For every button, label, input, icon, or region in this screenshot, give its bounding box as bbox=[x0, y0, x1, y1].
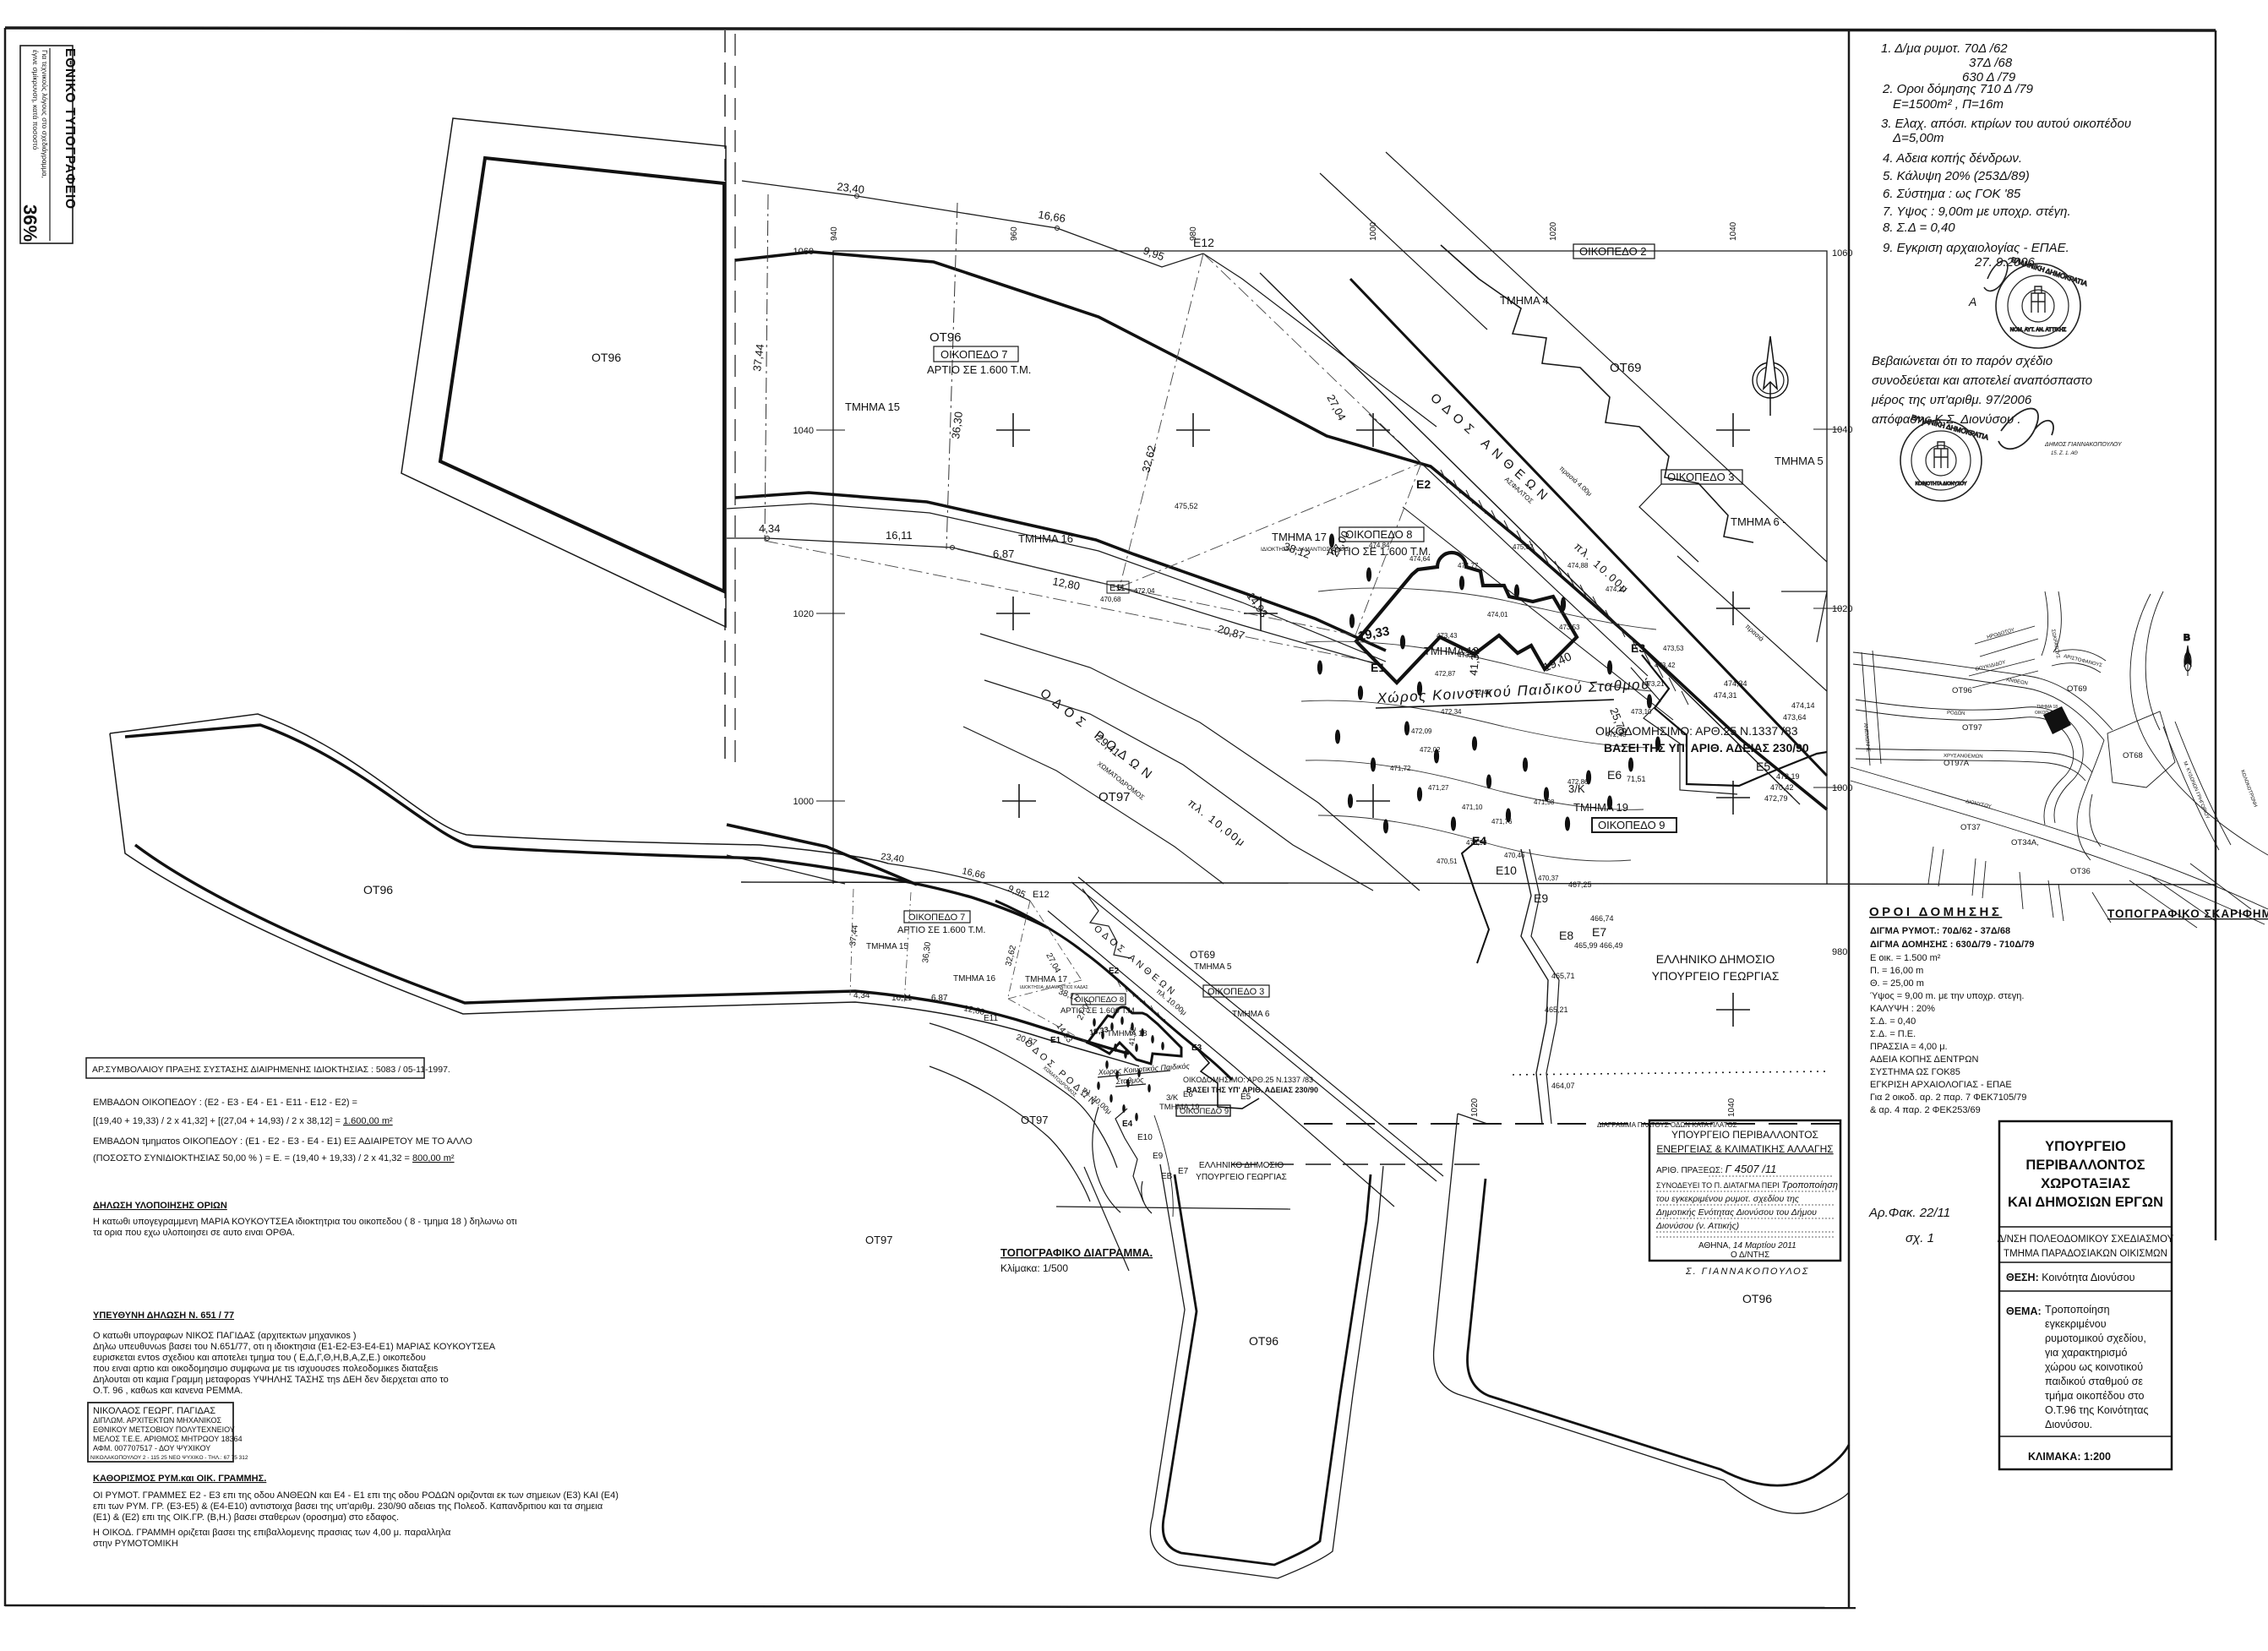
svg-text:του εγκεκριμένου ρυμοτ. σχε: του εγκεκριμένου ρυμοτ. σχεδίου της bbox=[1656, 1194, 1800, 1204]
svg-text:1020: 1020 bbox=[1549, 221, 1558, 241]
svg-text:ΤΜΗΜΑ 19: ΤΜΗΜΑ 19 bbox=[1573, 801, 1628, 814]
svg-text:6,87: 6,87 bbox=[931, 994, 948, 1003]
svg-text:8. Σ.Δ = 0,40: 8. Σ.Δ = 0,40 bbox=[1883, 221, 1955, 235]
svg-text:ΟΤ96: ΟΤ96 bbox=[1952, 686, 1972, 695]
svg-text:ΟΤ96: ΟΤ96 bbox=[1742, 1292, 1772, 1305]
svg-text:Β: Β bbox=[2183, 633, 2190, 643]
svg-text:ΑΡ.ΣΥΜΒΟΛΑΙΟΥ ΠΡΑΞΗΣ ΣΥΣΤΑΣΗ: ΑΡ.ΣΥΜΒΟΛΑΙΟΥ ΠΡΑΞΗΣ ΣΥΣΤΑΣΗΣ ΔΙΑΙΡΗΜΕΝΗ… bbox=[92, 1065, 450, 1075]
svg-text:Ε4: Ε4 bbox=[1122, 1120, 1133, 1129]
svg-text:960: 960 bbox=[1010, 226, 1019, 241]
svg-text:ΝΙΚΟΛΑΟΣ ΓΕΩΡΓ. ΠΑΓΙΔΑΣ: ΝΙΚΟΛΑΟΣ ΓΕΩΡΓ. ΠΑΓΙΔΑΣ bbox=[93, 1406, 215, 1416]
svg-text:41,32: 41,32 bbox=[1127, 1027, 1137, 1046]
svg-text:ΒΑΣΕΙ ΤΗΣ ΥΠ' ΑΡΙΘ. ΑΔΕΙΑΣ 230: ΒΑΣΕΙ ΤΗΣ ΥΠ' ΑΡΙΘ. ΑΔΕΙΑΣ 230/90 bbox=[1604, 741, 1809, 755]
svg-text:ΟΤ97: ΟΤ97 bbox=[1021, 1114, 1049, 1126]
svg-text:ΡΟΔΩΝ: ΡΟΔΩΝ bbox=[1947, 711, 1965, 717]
svg-text:473,58: 473,58 bbox=[1458, 651, 1479, 659]
svg-text:ΚΑΘΟΡΙΣΜΟΣ ΡΥΜ.και ΟΙΚ. ΓΡΑ: ΚΑΘΟΡΙΣΜΟΣ ΡΥΜ.και ΟΙΚ. ΓΡΑΜΜΗΣ. bbox=[93, 1474, 266, 1484]
svg-text:ΔΙΑΓΡΑΜΜΑ ΠΛΑΤΟΥΣ ΟΔΩΝ ΚΑΤΑ ΠΛ: ΔΙΑΓΡΑΜΜΑ ΠΛΑΤΟΥΣ ΟΔΩΝ ΚΑΤΑ ΠΛΑΤΟΣ bbox=[1597, 1121, 1737, 1129]
svg-text:472,87: 472,87 bbox=[1435, 670, 1456, 678]
svg-text:1040: 1040 bbox=[1727, 1098, 1736, 1117]
svg-text:475,52: 475,52 bbox=[1175, 502, 1198, 510]
svg-text:475,02: 475,02 bbox=[1513, 543, 1534, 551]
svg-text:ΟΙΚΟΠΕΔΟ 7: ΟΙΚΟΠΕΔΟ 7 bbox=[908, 913, 965, 923]
svg-text:471,27: 471,27 bbox=[1428, 784, 1449, 792]
svg-text:τα ορια που εχω υλοποιησει: τα ορια που εχω υλοποιησει σε αυτο ειναι… bbox=[93, 1228, 295, 1238]
svg-text:ΤΟΠΟΓΡΑΦΙΚΟ ΣΚΑΡΙΦΗΜΑ: ΤΟΠΟΓΡΑΦΙΚΟ ΣΚΑΡΙΦΗΜΑ bbox=[2107, 907, 2268, 920]
svg-text:474,88: 474,88 bbox=[1567, 562, 1589, 569]
svg-text:470,42: 470,42 bbox=[1770, 783, 1794, 792]
svg-text:ΟΙΚΟΠΕΔΟ 8: ΟΙΚΟΠΕΔΟ 8 bbox=[1075, 995, 1124, 1005]
svg-text:ΝΟΜ. ΑΥΤ. ΑΝ. ΑΤΤΙΚΗΣ: ΝΟΜ. ΑΥΤ. ΑΝ. ΑΤΤΙΚΗΣ bbox=[2010, 328, 2067, 333]
svg-text:ΟΙΚΟΠΕΔΟ 7: ΟΙΚΟΠΕΔΟ 7 bbox=[940, 348, 1008, 361]
svg-text:Ε11: Ε11 bbox=[984, 1014, 998, 1023]
svg-text:Θ. = 25,00 m: Θ. = 25,00 m bbox=[1870, 978, 1924, 989]
svg-text:ΑΔΕΙΑ ΚΟΠΗΣ ΔΕΝΤΡΩΝ: ΑΔΕΙΑ ΚΟΠΗΣ ΔΕΝΤΡΩΝ bbox=[1870, 1054, 1978, 1065]
svg-text:ΤΜΗΜΑ 5: ΤΜΗΜΑ 5 bbox=[1194, 962, 1232, 972]
svg-text:471,72: 471,72 bbox=[1390, 765, 1411, 772]
svg-text:474,14: 474,14 bbox=[1791, 701, 1815, 710]
svg-text:1040: 1040 bbox=[1729, 221, 1738, 241]
svg-text:ΔΙΓΜΑ ΡΥΜΟΤ.: 70Δ/62 - 37Δ/68: ΔΙΓΜΑ ΡΥΜΟΤ.: 70Δ/62 - 37Δ/68 bbox=[1870, 926, 2010, 936]
svg-text:ΟΤ96: ΟΤ96 bbox=[363, 883, 393, 896]
svg-text:ΟΙΚΟΔΟΜΗΣΙΜΟ: ΑΡΘ.25 Ν.1337: ΟΙΚΟΔΟΜΗΣΙΜΟ: ΑΡΘ.25 Ν.1337 /83 bbox=[1183, 1076, 1313, 1084]
svg-text:ΕΛΛΗΝΙΚΟ ΔΗΜΟΣΙΟ: ΕΛΛΗΝΙΚΟ ΔΗΜΟΣΙΟ bbox=[1199, 1161, 1284, 1170]
svg-text:ΥΠΟΥΡΓΕΙΟ ΠΕΡΙΒΑΛΛΟΝΤΟΣ: ΥΠΟΥΡΓΕΙΟ ΠΕΡΙΒΑΛΛΟΝΤΟΣ bbox=[1671, 1129, 1818, 1141]
svg-text:συνοδεύεται και αποτελεί ανα: συνοδεύεται και αποτελεί αναπόσπαστο bbox=[1872, 373, 2092, 388]
svg-text:474,31: 474,31 bbox=[1714, 691, 1737, 700]
svg-text:(ΠΟΣΟΣΤΟ ΣΥΝΙΔΙΟΚΤΗΣΙΑΣ 50,0: (ΠΟΣΟΣΤΟ ΣΥΝΙΔΙΟΚΤΗΣΙΑΣ 50,00 % ) = Ε. =… bbox=[93, 1153, 455, 1163]
svg-text:470,68: 470,68 bbox=[1100, 596, 1121, 603]
svg-text:4. Αδεια κοπής δένδρων.: 4. Αδεια κοπής δένδρων. bbox=[1883, 151, 2022, 166]
svg-text:ΟΙΚΟΠΕΔΟ 2: ΟΙΚΟΠΕΔΟ 2 bbox=[1579, 245, 1647, 258]
svg-text:1040: 1040 bbox=[1832, 425, 1852, 435]
svg-text:Π. = 16,00 m: Π. = 16,00 m bbox=[1870, 966, 1923, 976]
svg-text:Ε4: Ε4 bbox=[1472, 834, 1486, 847]
svg-text:6. Σύστημα : ως ΓΟΚ '85: 6. Σύστημα : ως ΓΟΚ '85 bbox=[1883, 187, 2021, 201]
svg-text:ΟΙΚΟΠΕΔΟ 3: ΟΙΚΟΠΕΔΟ 3 bbox=[1208, 987, 1264, 997]
svg-text:Η κατωθι υπογεγραμμενη ΜΑΡΙ: Η κατωθι υπογεγραμμενη ΜΑΡΙΑ ΚΟΥΚΟΥΤΣΕΑ … bbox=[93, 1217, 517, 1227]
svg-text:ΤΜΗΜΑ 18: ΤΜΗΜΑ 18 bbox=[2036, 705, 2058, 710]
svg-text:ΟΙΚΟΠΕΔΟ 8: ΟΙΚΟΠΕΔΟ 8 bbox=[1345, 528, 1413, 541]
svg-text:ΔΗΜΟΣ ΓΙΑΝΝΑΚΟΠΟΥΛΟΥ: ΔΗΜΟΣ ΓΙΑΝΝΑΚΟΠΟΥΛΟΥ bbox=[2044, 442, 2123, 448]
svg-text:940: 940 bbox=[830, 226, 839, 241]
svg-text:ΤΟΠΟΓΡΑΦΙΚΟ ΔΙΑΓΡΑΜΜΑ.: ΤΟΠΟΓΡΑΦΙΚΟ ΔΙΑΓΡΑΜΜΑ. bbox=[1000, 1246, 1153, 1259]
svg-text:παιδικού σταθμού σε: παιδικού σταθμού σε bbox=[2045, 1376, 2143, 1387]
svg-text:1000: 1000 bbox=[1832, 783, 1852, 793]
svg-text:ΙΔΙΟΚΤΗΣΙΑ: ΑΔΑΜΑΝΤΙΟΣ ΚΑΔΑΣ: ΙΔΙΟΚΤΗΣΙΑ: ΑΔΑΜΑΝΤΙΟΣ ΚΑΔΑΣ bbox=[1020, 985, 1088, 990]
svg-text:ΤΜΗΜΑ 6: ΤΜΗΜΑ 6 bbox=[1232, 1010, 1270, 1019]
svg-text:465,21: 465,21 bbox=[1545, 1005, 1568, 1014]
svg-text:1000: 1000 bbox=[793, 797, 814, 807]
svg-text:472,34: 472,34 bbox=[1441, 708, 1462, 716]
svg-text:ΟΤ69: ΟΤ69 bbox=[2067, 684, 2087, 694]
svg-text:16,11: 16,11 bbox=[891, 994, 913, 1003]
svg-text:ΤΜΗΜΑ 16: ΤΜΗΜΑ 16 bbox=[953, 974, 995, 984]
svg-text:ΕΘΝΙΚΟΥ ΜΕΤΣΟΒΙΟΥ ΠΟΛΥΤΕΧΝΕΙ: ΕΘΝΙΚΟΥ ΜΕΤΣΟΒΙΟΥ ΠΟΛΥΤΕΧΝΕΙΟΥ bbox=[93, 1425, 235, 1434]
svg-text:Α: Α bbox=[1968, 295, 1976, 308]
svg-text:ΔΗΛΩΣΗ ΥΛΟΠΟΙΗΣΗΣ ΟΡΙΩΝ: ΔΗΛΩΣΗ ΥΛΟΠΟΙΗΣΗΣ ΟΡΙΩΝ bbox=[93, 1201, 227, 1211]
svg-text:4,34: 4,34 bbox=[853, 991, 870, 1000]
svg-text:474,84: 474,84 bbox=[1369, 542, 1390, 549]
svg-text:464,07: 464,07 bbox=[1551, 1082, 1575, 1090]
svg-text:Ε οικ. = 1.500 m²: Ε οικ. = 1.500 m² bbox=[1870, 953, 1941, 963]
svg-text:Για 2 οικοδ. αρ. 2 παρ. 7 ΦΕΚ7: Για 2 οικοδ. αρ. 2 παρ. 7 ΦΕΚ7105/79 bbox=[1870, 1092, 2026, 1103]
svg-text:ΟΤ97: ΟΤ97 bbox=[865, 1234, 893, 1246]
svg-text:μέρος της υπ'αριθμ. 97/2006: μέρος της υπ'αριθμ. 97/2006 bbox=[1871, 393, 2032, 407]
svg-text:472,79: 472,79 bbox=[1764, 794, 1788, 803]
svg-text:Σ. ΓΙΑΝΝΑΚΟΠΟΥΛΟΣ: Σ. ΓΙΑΝΝΑΚΟΠΟΥΛΟΣ bbox=[1685, 1267, 1809, 1277]
svg-text:ΚΑΛΥΨΗ : 20%: ΚΑΛΥΨΗ : 20% bbox=[1870, 1004, 1935, 1014]
svg-text:5. Κάλυψη 20% (253Δ/89): 5. Κάλυψη 20% (253Δ/89) bbox=[1883, 169, 2030, 183]
svg-text:ΟΤ36: ΟΤ36 bbox=[2070, 867, 2091, 876]
svg-text:474,10: 474,10 bbox=[1606, 586, 1627, 593]
svg-text:Κλίμακα: 1/500: Κλίμακα: 1/500 bbox=[1000, 1262, 1068, 1274]
svg-text:1040: 1040 bbox=[793, 426, 814, 436]
svg-text:ΕΝΕΡΓΕΙΑΣ & ΚΛΙΜΑΤΙΚΗΣ ΑΛΛΑ: ΕΝΕΡΓΕΙΑΣ & ΚΛΙΜΑΤΙΚΗΣ ΑΛΛΑΓΗΣ bbox=[1656, 1143, 1833, 1155]
svg-text:Για τεχνικούς λόγους στο σχεδι: Για τεχνικούς λόγους στο σχεδιάγραμμα, bbox=[41, 50, 49, 178]
svg-text:ΠΡΑΣΣΙΑ = 4,00 μ.: ΠΡΑΣΣΙΑ = 4,00 μ. bbox=[1870, 1042, 1948, 1052]
svg-text:ΟΤ34Α,: ΟΤ34Α, bbox=[2011, 838, 2039, 847]
svg-text:Σ.Δ. = Π.Ε.: Σ.Δ. = Π.Ε. bbox=[1870, 1029, 1916, 1039]
svg-text:ΟΤ96: ΟΤ96 bbox=[592, 351, 621, 364]
svg-text:Ε9: Ε9 bbox=[1534, 891, 1548, 905]
svg-text:Ύψος = 9,00 m. με την υποχρ: Ύψος = 9,00 m. με την υποχρ. στεγη. bbox=[1870, 991, 2024, 1001]
svg-text:ΟΙ ΡΥΜΟΤ. ΓΡΑΜΜΕΣ Ε2 - Ε3 επι: ΟΙ ΡΥΜΟΤ. ΓΡΑΜΜΕΣ Ε2 - Ε3 επι της οδου Α… bbox=[93, 1490, 619, 1501]
svg-text:1000: 1000 bbox=[1369, 221, 1378, 241]
svg-text:472,09: 472,09 bbox=[1411, 727, 1432, 735]
svg-text:ΚΑΙ ΔΗΜΟΣΙΩΝ ΕΡΓΩΝ: ΚΑΙ ΔΗΜΟΣΙΩΝ ΕΡΓΩΝ bbox=[2008, 1195, 2163, 1210]
svg-text:ΟΙΚΟΔΟΜΗΣΙΜΟ: ΑΡΘ.25 Ν.1337: ΟΙΚΟΔΟΜΗΣΙΜΟ: ΑΡΘ.25 Ν.1337 /83 bbox=[1595, 724, 1798, 738]
svg-text:1020: 1020 bbox=[1470, 1098, 1480, 1117]
svg-text:1060: 1060 bbox=[1832, 248, 1852, 259]
svg-text:Η ΟΙΚΟΔ. ΓΡΑΜΜΗ οριζεται βα: Η ΟΙΚΟΔ. ΓΡΑΜΜΗ οριζεται βασει της επιβα… bbox=[93, 1528, 451, 1538]
svg-text:για χαρακτηρισμό: για χαρακτηρισμό bbox=[2045, 1347, 2127, 1359]
svg-text:2. Οροι δόμησης 710 Δ /79: 2. Οροι δόμησης 710 Δ /79 bbox=[1882, 82, 2034, 96]
svg-text:466,74: 466,74 bbox=[1590, 914, 1614, 923]
svg-text:ΔΙΠΛΩΜ. ΑΡΧΙΤΕΚΤΩΝ ΜΗΧΑΝΙΚΟΣ: ΔΙΠΛΩΜ. ΑΡΧΙΤΕΚΤΩΝ ΜΗΧΑΝΙΚΟΣ bbox=[93, 1416, 222, 1425]
svg-text:Ε=1500m² , Π=16m: Ε=1500m² , Π=16m bbox=[1893, 97, 2004, 112]
svg-text:Δηλουται οτι καμια Γραμμη: Δηλουται οτι καμια Γραμμη μεταφοραs ΥΨΗΛ… bbox=[93, 1375, 449, 1385]
svg-text:ΑΡΤΙΟ ΣΕ 1.600 Τ.Μ.: ΑΡΤΙΟ ΣΕ 1.600 Τ.Μ. bbox=[897, 925, 985, 935]
svg-text:ΧΩΡΟΤΑΞΙΑΣ: ΧΩΡΟΤΑΞΙΑΣ bbox=[2041, 1176, 2130, 1191]
svg-text:Τροποποίηση: Τροποποίηση bbox=[2045, 1304, 2110, 1316]
svg-text:Ο.Τ.96 της Κοινότητας: Ο.Τ.96 της Κοινότητας bbox=[2045, 1404, 2149, 1416]
svg-text:ΟΤ37: ΟΤ37 bbox=[1960, 823, 1981, 832]
svg-text:Δημοτικής Ενότητας Διονύσου: Δημοτικής Ενότητας Διονύσου του Δήμου bbox=[1655, 1207, 1817, 1218]
svg-text:15. Ζ. 1. ΑΘ: 15. Ζ. 1. ΑΘ bbox=[2051, 451, 2078, 456]
svg-text:ΚΟΙΝΟΤΗΤΑ ΔΙΟΝΥΣΟΥ: ΚΟΙΝΟΤΗΤΑ ΔΙΟΝΥΣΟΥ bbox=[1916, 482, 1967, 487]
svg-text:1. Δ/μα ρυμοτ. 70Δ /62: 1. Δ/μα ρυμοτ. 70Δ /62 bbox=[1881, 41, 2008, 56]
svg-text:470,37: 470,37 bbox=[1538, 875, 1559, 882]
svg-text:Βεβαιώνεται ότι το παρόν σ: Βεβαιώνεται ότι το παρόν σχέδιο bbox=[1872, 354, 2053, 368]
svg-text:ΟΤ97: ΟΤ97 bbox=[1099, 790, 1131, 804]
svg-text:ΣΥΣΤΗΜΑ ΩΣ ΓΟΚ85: ΣΥΣΤΗΜΑ ΩΣ ΓΟΚ85 bbox=[1870, 1067, 1960, 1077]
svg-text:ΟΤ69: ΟΤ69 bbox=[1190, 949, 1215, 961]
svg-text:470,51: 470,51 bbox=[1437, 858, 1458, 865]
svg-text:471,98: 471,98 bbox=[1534, 798, 1555, 806]
svg-text:Ε3: Ε3 bbox=[1631, 641, 1645, 655]
svg-text:ΟΤ97Α: ΟΤ97Α bbox=[1944, 759, 1970, 768]
svg-text:Ε11: Ε11 bbox=[1109, 583, 1126, 593]
svg-text:εγκεκριμένου: εγκεκριμένου bbox=[2045, 1318, 2107, 1330]
svg-text:ΟΡΟΙ ΔΟΜΗΣΗΣ: ΟΡΟΙ ΔΟΜΗΣΗΣ bbox=[1869, 905, 2002, 919]
svg-text:ΑΦΜ. 007707517 - ΔΟΥ ΨΥΧΙΚ: ΑΦΜ. 007707517 - ΔΟΥ ΨΥΧΙΚΟΥ bbox=[93, 1444, 210, 1452]
svg-text:ΟΤ96: ΟΤ96 bbox=[1249, 1334, 1278, 1348]
svg-text:Ε1: Ε1 bbox=[1371, 661, 1385, 674]
svg-text:Ε10: Ε10 bbox=[1137, 1133, 1153, 1142]
svg-text:ΥΠΟΥΡΓΕΙΟ ΓΕΩΡΓΙΑΣ: ΥΠΟΥΡΓΕΙΟ ΓΕΩΡΓΙΑΣ bbox=[1652, 969, 1780, 983]
svg-text:Ε5: Ε5 bbox=[1756, 760, 1770, 773]
svg-text:ΚΛΙΜΑΚΑ: 1:200: ΚΛΙΜΑΚΑ: 1:200 bbox=[2028, 1451, 2111, 1463]
svg-text:Ε2: Ε2 bbox=[1416, 477, 1431, 491]
svg-text:Ε7: Ε7 bbox=[1592, 925, 1606, 939]
svg-text:ΤΜΗΜΑ 4: ΤΜΗΜΑ 4 bbox=[1500, 294, 1549, 307]
svg-text:[(19,40 + 19,33) / 2 x 41,32]: [(19,40 + 19,33) / 2 x 41,32] + [(27,04 … bbox=[93, 1116, 393, 1126]
svg-text:6,87: 6,87 bbox=[993, 548, 1014, 560]
svg-text:ΕΛΛΗΝΙΚΟ ΔΗΜΟΣΙΟ: ΕΛΛΗΝΙΚΟ ΔΗΜΟΣΙΟ bbox=[1656, 952, 1775, 966]
svg-text:ΟΤ69: ΟΤ69 bbox=[1610, 361, 1642, 375]
svg-text:ΘΕΣΗ: Κοινότητα Διονύσου: ΘΕΣΗ: Κοινότητα Διονύσου bbox=[2006, 1272, 2135, 1283]
svg-text:473,42: 473,42 bbox=[1655, 662, 1676, 669]
svg-text:473,53: 473,53 bbox=[1663, 645, 1684, 652]
svg-text:Ε10: Ε10 bbox=[1496, 864, 1517, 877]
svg-text:ΔΙΓΜΑ ΔΟΜΗΣΗΣ : 630Δ/79 - 710Δ: ΔΙΓΜΑ ΔΟΜΗΣΗΣ : 630Δ/79 - 710Δ/79 bbox=[1870, 940, 2034, 950]
svg-text:ΥΠΕΥΘΥΝΗ ΔΗΛΩΣΗ Ν. 651 / 77: ΥΠΕΥΘΥΝΗ ΔΗΛΩΣΗ Ν. 651 / 77 bbox=[93, 1310, 234, 1321]
svg-text:Ε3: Ε3 bbox=[1191, 1043, 1202, 1053]
svg-text:ΒΑΣΕΙ ΤΗΣ ΥΠ' ΑΡΙΘ. ΑΔΕΙΑΣ 230: ΒΑΣΕΙ ΤΗΣ ΥΠ' ΑΡΙΘ. ΑΔΕΙΑΣ 230/90 bbox=[1186, 1086, 1318, 1094]
svg-text:Αρ.Φακ. 22/11: Αρ.Φακ. 22/11 bbox=[1868, 1206, 1950, 1220]
svg-text:ΜΕΛΟΣ Τ.Ε.Ε. ΑΡΙΘΜΟΣ ΜΗΤΡΩΟΥ 1: ΜΕΛΟΣ Τ.Ε.Ε. ΑΡΙΘΜΟΣ ΜΗΤΡΩΟΥ 18364 bbox=[93, 1435, 243, 1443]
svg-text:473,64: 473,64 bbox=[1783, 713, 1807, 722]
svg-text:4,34: 4,34 bbox=[759, 522, 780, 535]
svg-text:467,25: 467,25 bbox=[1568, 880, 1592, 889]
svg-text:Ο κατωθι υπογραφων ΝΙΚΟΣ Π: Ο κατωθι υπογραφων ΝΙΚΟΣ ΠΑΓΙΔΑΣ (αρχιτε… bbox=[93, 1331, 357, 1341]
svg-text:3/Κ: 3/Κ bbox=[1568, 782, 1585, 795]
svg-text:474,64: 474,64 bbox=[1409, 555, 1431, 563]
svg-text:που ειναι αρτιο και οικοδομησ: που ειναι αρτιο και οικοδομησιμο συμφωνα… bbox=[93, 1364, 439, 1374]
svg-text:ΕΜΒΑΔΟΝ ΟΙΚΟΠΕΔΟΥ : (Ε2 - Ε3: ΕΜΒΑΔΟΝ ΟΙΚΟΠΕΔΟΥ : (Ε2 - Ε3 - Ε4 - Ε1 -… bbox=[93, 1098, 357, 1108]
svg-text:Ε6: Ε6 bbox=[1183, 1090, 1193, 1099]
svg-text:Δ/ΝΣΗ ΠΟΛΕΟΔΟΜΙΚΟΥ ΣΧΕΔΙΑΣΜΟΥ: Δ/ΝΣΗ ΠΟΛΕΟΔΟΜΙΚΟΥ ΣΧΕΔΙΑΣΜΟΥ bbox=[1998, 1234, 2174, 1245]
svg-text:ΟΙΚΟΠΕΔΟ 3: ΟΙΚΟΠΕΔΟ 3 bbox=[1667, 471, 1735, 483]
svg-text:ΤΜΗΜΑ 18: ΤΜΗΜΑ 18 bbox=[1107, 1029, 1148, 1038]
svg-text:Ε6: Ε6 bbox=[1607, 768, 1622, 782]
svg-text:ΑΡΤΙΟ ΣΕ 1.600 Τ.Μ.: ΑΡΤΙΟ ΣΕ 1.600 Τ.Μ. bbox=[927, 363, 1031, 376]
svg-text:ΕΘΝΙΚΟ ΤΥΠΟΓΡΑΦΕΙΟ: ΕΘΝΙΚΟ ΤΥΠΟΓΡΑΦΕΙΟ bbox=[63, 48, 77, 210]
svg-text:επι των ΡΥΜ. ΓΡ. (Ε3-Ε5) &: επι των ΡΥΜ. ΓΡ. (Ε3-Ε5) & (Ε4-Ε10) αντι… bbox=[93, 1501, 603, 1512]
svg-text:ΣΥΝΟΔΕΥΕΙ ΤΟ Π. ΔΙΑΤΑΓΜΑ Π: ΣΥΝΟΔΕΥΕΙ ΤΟ Π. ΔΙΑΤΑΓΜΑ ΠΕΡΙ Τροποποίησ… bbox=[1656, 1180, 1838, 1191]
svg-text:1020: 1020 bbox=[1832, 604, 1852, 614]
svg-text:Ε12: Ε12 bbox=[1033, 890, 1049, 900]
svg-text:& αρ. 4 παρ. 2 ΦΕΚ253/69: & αρ. 4 παρ. 2 ΦΕΚ253/69 bbox=[1870, 1105, 1981, 1115]
svg-text:Δ=5,00m: Δ=5,00m bbox=[1892, 131, 1944, 145]
svg-text:ΟΤ68: ΟΤ68 bbox=[2123, 751, 2143, 760]
svg-text:3/Κ: 3/Κ bbox=[1166, 1093, 1179, 1103]
svg-text:Διονύσου (ν. Αττικής): Διονύσου (ν. Αττικής) bbox=[1655, 1221, 1739, 1231]
svg-text:Δηλω υπευθυνωs βασει του Ν.6: Δηλω υπευθυνωs βασει του Ν.651/77, οτι η… bbox=[93, 1342, 496, 1352]
svg-text:ΟΤ96: ΟΤ96 bbox=[930, 330, 962, 345]
svg-text:ΤΜΗΜΑ 16: ΤΜΗΜΑ 16 bbox=[1018, 532, 1073, 545]
svg-text:472,04: 472,04 bbox=[1134, 587, 1155, 595]
svg-text:ΥΠΟΥΡΓΕΙΟ: ΥΠΟΥΡΓΕΙΟ bbox=[2045, 1139, 2126, 1154]
svg-text:ΕΓΚΡΙΣΗ ΑΡΧΑΙΟΛΟΓΙΑΣ - ΕΠΑΕ: ΕΓΚΡΙΣΗ ΑΡΧΑΙΟΛΟΓΙΑΣ - ΕΠΑΕ bbox=[1870, 1080, 2012, 1090]
svg-text:474,01: 474,01 bbox=[1487, 611, 1508, 618]
svg-text:ΕΜΒΑΔΟΝ τμηματοs ΟΙΚΟΠΕΔΟΥ :: ΕΜΒΑΔΟΝ τμηματοs ΟΙΚΟΠΕΔΟΥ : (Ε1 - Ε2 - … bbox=[93, 1136, 472, 1147]
svg-text:1020: 1020 bbox=[793, 609, 814, 619]
svg-text:τμήμα οικοπέδου στο: τμήμα οικοπέδου στο bbox=[2045, 1390, 2144, 1402]
svg-text:37Δ /68: 37Δ /68 bbox=[1969, 56, 2013, 70]
svg-text:ΟΤ97: ΟΤ97 bbox=[1962, 723, 1982, 733]
svg-text:9. Εγκριση αρχαιολογίας - ΕΠ: 9. Εγκριση αρχαιολογίας - ΕΠΑΕ. bbox=[1883, 241, 2069, 255]
svg-text:ΤΜΗΜΑ 17: ΤΜΗΜΑ 17 bbox=[1025, 975, 1067, 984]
svg-text:στην ΡΥΜΟΤΟΜΙΚΗ: στην ΡΥΜΟΤΟΜΙΚΗ bbox=[93, 1539, 178, 1549]
svg-text:474,34: 474,34 bbox=[1724, 679, 1747, 688]
svg-text:ΤΜΗΜΑ 17: ΤΜΗΜΑ 17 bbox=[1272, 531, 1327, 543]
svg-text:ρυμοτομικού σχεδίου,: ρυμοτομικού σχεδίου, bbox=[2045, 1332, 2146, 1344]
svg-text:471,76: 471,76 bbox=[1491, 818, 1513, 825]
svg-text:ΟΙΚΟΠ. 8: ΟΙΚΟΠ. 8 bbox=[2035, 711, 2053, 716]
svg-text:466,49: 466,49 bbox=[1600, 941, 1623, 950]
svg-text:36%: 36% bbox=[19, 204, 41, 242]
svg-text:Ε12: Ε12 bbox=[1193, 236, 1214, 249]
svg-text:ΟΙΚΟΠΕΔΟ 9: ΟΙΚΟΠΕΔΟ 9 bbox=[1180, 1107, 1229, 1116]
svg-text:Ε9: Ε9 bbox=[1153, 1152, 1164, 1161]
svg-text:ΠΕΡΙΒΑΛΛΟΝΤΟΣ: ΠΕΡΙΒΑΛΛΟΝΤΟΣ bbox=[2025, 1158, 2145, 1173]
svg-text:472,02: 472,02 bbox=[1420, 746, 1441, 754]
svg-text:Σ.Δ. = 0,40: Σ.Δ. = 0,40 bbox=[1870, 1016, 1916, 1027]
svg-text:ΤΜΗΜΑ 5: ΤΜΗΜΑ 5 bbox=[1775, 455, 1824, 467]
svg-text:471,10: 471,10 bbox=[1462, 804, 1483, 811]
svg-text:473,10: 473,10 bbox=[1631, 708, 1652, 716]
svg-text:Ε1: Ε1 bbox=[1050, 1036, 1061, 1045]
svg-text:474,77: 474,77 bbox=[1458, 562, 1479, 569]
svg-text:473,53: 473,53 bbox=[1559, 624, 1580, 631]
svg-text:ΝΙΚΟΛΑΚΟΠΟΥΛΟΥ 2 - 115 25 ΝΕΟ: ΝΙΚΟΛΑΚΟΠΟΥΛΟΥ 2 - 115 25 ΝΕΟ ΨΥΧΙΚΟ - Τ… bbox=[90, 1455, 248, 1461]
svg-text:Ο Δ/ΝΤΗΣ: Ο Δ/ΝΤΗΣ bbox=[1731, 1251, 1769, 1260]
svg-text:472,19: 472,19 bbox=[1776, 772, 1800, 781]
svg-text:Ε5: Ε5 bbox=[1240, 1092, 1251, 1102]
svg-text:ΧΡΥΣΑΝΘΕΜΩΝ: ΧΡΥΣΑΝΘΕΜΩΝ bbox=[1944, 754, 1983, 760]
svg-text:Ε2: Ε2 bbox=[1109, 967, 1120, 976]
svg-text:ΟΙΚΟΠΕΔΟ 9: ΟΙΚΟΠΕΔΟ 9 bbox=[1598, 819, 1666, 831]
svg-text:ΤΜΗΜΑ ΠΑΡΑΔΟΣΙΑΚΩΝ ΟΙΚΙΣΜΩΝ: ΤΜΗΜΑ ΠΑΡΑΔΟΣΙΑΚΩΝ ΟΙΚΙΣΜΩΝ bbox=[2004, 1249, 2167, 1259]
svg-text:Ε7: Ε7 bbox=[1178, 1167, 1189, 1176]
svg-text:465,99: 465,99 bbox=[1574, 941, 1598, 950]
svg-text:Ο.Τ. 96 , καθωs και κανενα: Ο.Τ. 96 , καθωs και κανενα ΡΕΜΜΑ. bbox=[93, 1386, 243, 1396]
svg-text:ΤΜΗΜΑ 6 -: ΤΜΗΜΑ 6 - bbox=[1731, 515, 1786, 528]
svg-text:ΤΜΗΜΑ 15: ΤΜΗΜΑ 15 bbox=[866, 942, 908, 951]
svg-text:(Ε1) & (Ε2) επι της ΟΙΚ.Γ: (Ε1) & (Ε2) επι της ΟΙΚ.ΓΡ. (Β,Η.) βασει… bbox=[93, 1512, 399, 1523]
svg-text:16,11: 16,11 bbox=[886, 529, 913, 542]
svg-text:465,71: 465,71 bbox=[1551, 972, 1575, 980]
svg-text:3. Ελαχ. απόσι. κτιρίων του αυ: 3. Ελαχ. απόσι. κτιρίων του αυτού οικοπέ… bbox=[1881, 117, 2131, 131]
svg-text:7. Υψος : 9,00m με υποχρ: 7. Υψος : 9,00m με υποχρ. στέγη. bbox=[1883, 204, 2071, 219]
svg-text:ΑΘΗΝΑ, 14 Μαρτίου 2011: ΑΘΗΝΑ, 14 Μαρτίου 2011 bbox=[1698, 1240, 1796, 1251]
svg-text:Ε8: Ε8 bbox=[1559, 929, 1573, 942]
svg-text:ΤΜΗΜΑ 15: ΤΜΗΜΑ 15 bbox=[845, 400, 900, 413]
svg-text:71,51: 71,51 bbox=[1627, 775, 1646, 783]
svg-text:ΥΠΟΥΡΓΕΙΟ ΓΕΩΡΓΙΑΣ: ΥΠΟΥΡΓΕΙΟ ΓΕΩΡΓΙΑΣ bbox=[1196, 1173, 1287, 1182]
svg-text:ευρισκεται εντοs σχεδιου και α: ευρισκεται εντοs σχεδιου και αποτελει τμ… bbox=[93, 1353, 426, 1363]
svg-text:980: 980 bbox=[1832, 947, 1847, 957]
svg-text:473,43: 473,43 bbox=[1437, 632, 1458, 640]
svg-text:έγινε σμίκρυνση, κατά ποσοστό: έγινε σμίκρυνση, κατά ποσοστό bbox=[31, 50, 40, 150]
svg-text:ΘΕΜΑ:: ΘΕΜΑ: bbox=[2006, 1305, 2042, 1317]
svg-text:σχ. 1: σχ. 1 bbox=[1905, 1231, 1934, 1245]
svg-text:χώρου ως κοινοτικού: χώρου ως κοινοτικού bbox=[2045, 1361, 2143, 1373]
svg-text:Διονύσου.: Διονύσου. bbox=[2045, 1419, 2092, 1430]
